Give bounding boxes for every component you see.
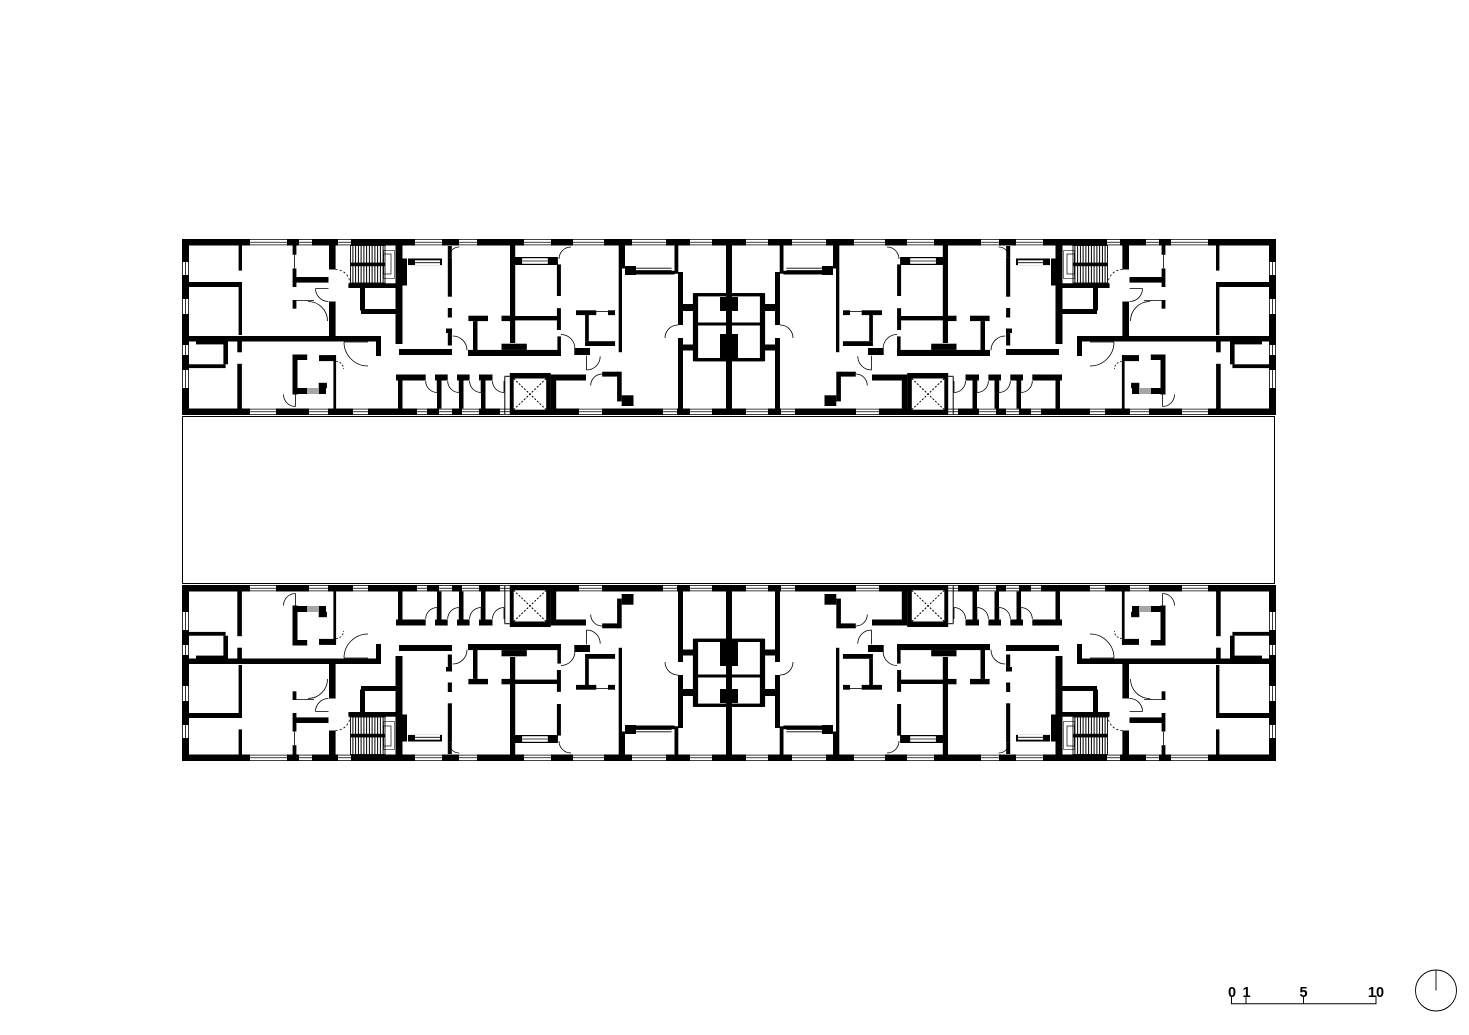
- svg-text:0: 0: [1228, 985, 1236, 1001]
- svg-text:10: 10: [1368, 985, 1384, 1001]
- svg-text:1: 1: [1242, 985, 1250, 1001]
- svg-text:5: 5: [1299, 985, 1307, 1001]
